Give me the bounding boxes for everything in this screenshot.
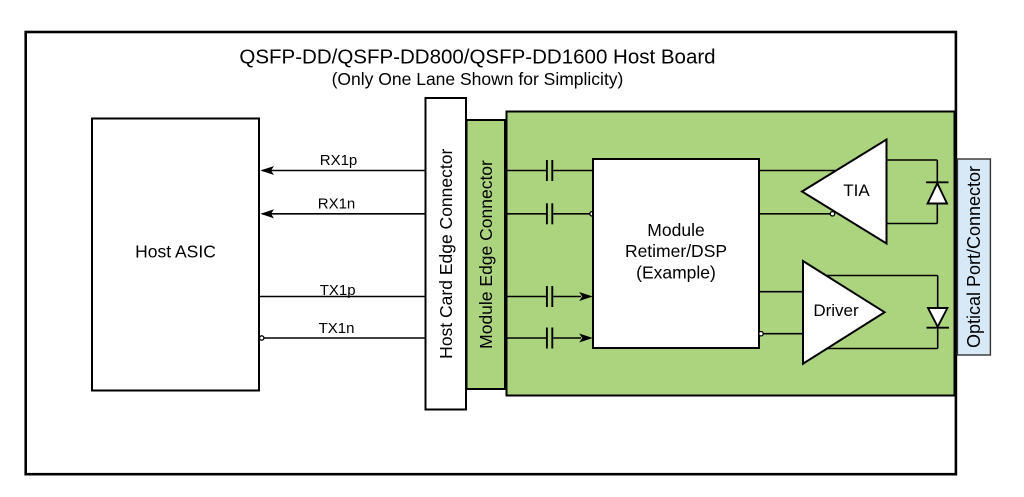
svg-text:TX1p: TX1p [320,282,356,299]
svg-text:TX1n: TX1n [319,320,355,337]
svg-text:Module: Module [647,220,704,240]
svg-text:(Example): (Example) [636,263,716,283]
svg-text:RX1p: RX1p [320,152,358,169]
svg-text:RX1n: RX1n [318,195,356,212]
svg-text:Module Edge Connector: Module Edge Connector [476,160,496,349]
svg-text:Retimer/DSP: Retimer/DSP [625,241,727,261]
svg-text:Optical Port/Connector: Optical Port/Connector [964,166,984,348]
svg-text:(Only One Lane Shown for Simpl: (Only One Lane Shown for Simplicity) [332,69,624,89]
svg-text:Host ASIC: Host ASIC [135,242,216,262]
svg-text:Host Card Edge Connector: Host Card Edge Connector [436,149,456,359]
svg-text:TIA: TIA [843,181,870,200]
svg-text:Driver: Driver [813,301,859,320]
svg-text:QSFP-DD/QSFP-DD800/QSFP-DD1600: QSFP-DD/QSFP-DD800/QSFP-DD1600 Host Boar… [239,46,715,69]
